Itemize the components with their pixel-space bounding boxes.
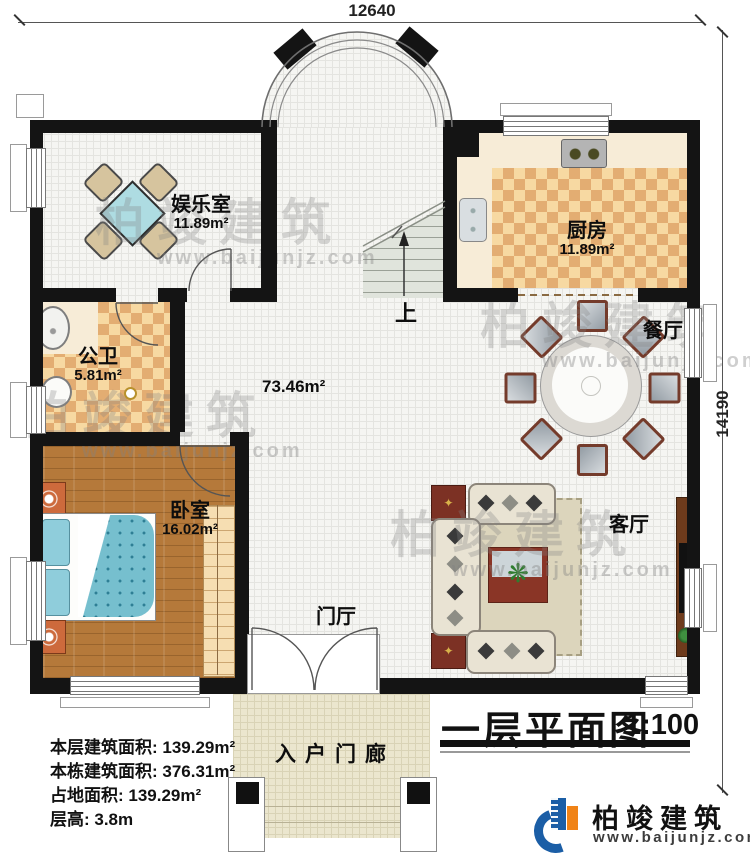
porch-column-core bbox=[236, 782, 259, 804]
window-sill bbox=[10, 382, 27, 438]
room-name: 卧室 bbox=[130, 500, 250, 522]
dimension-tick bbox=[694, 14, 706, 26]
facade-step bbox=[16, 94, 44, 118]
dining-chair bbox=[649, 373, 681, 404]
room-label-porch: 入户门廊 bbox=[240, 743, 430, 767]
wall bbox=[638, 288, 700, 302]
entrance-door-frame bbox=[247, 634, 380, 694]
window bbox=[26, 148, 46, 208]
room-label-bathroom: 公卫 5.81m² bbox=[40, 346, 156, 385]
stove bbox=[561, 139, 607, 168]
room-name: 娱乐室 bbox=[140, 194, 262, 216]
window-sill bbox=[60, 697, 210, 708]
info-footprint: 占地面积: 139.29m² bbox=[50, 781, 201, 806]
sofa-left bbox=[431, 518, 481, 636]
wall bbox=[380, 678, 645, 694]
plant-icon: ❋ bbox=[503, 558, 533, 588]
logo-building-orange-icon bbox=[567, 806, 578, 830]
window bbox=[684, 568, 702, 628]
info-floor-area: 本层建筑面积: 139.29m² bbox=[50, 733, 235, 758]
room-name: 厨房 bbox=[527, 220, 647, 242]
window bbox=[70, 676, 200, 695]
floorplan-canvas: ✦ ✦ ❋ 柏竣建筑www.baijunjz.com 柏竣建筑www.baiju… bbox=[0, 0, 750, 860]
dimension-top-value: 12640 bbox=[330, 1, 414, 21]
title-underline bbox=[440, 740, 690, 747]
side-table: ✦ bbox=[431, 485, 466, 521]
sofa-top bbox=[468, 483, 556, 525]
info-building-area: 本栋建筑面积: 376.31m² bbox=[50, 757, 235, 782]
dimension-right-value: 14190 bbox=[713, 379, 733, 449]
wall bbox=[200, 678, 247, 694]
side-table: ✦ bbox=[431, 633, 466, 669]
room-label-living: 客厅 bbox=[596, 514, 662, 536]
bed-pillow bbox=[42, 569, 70, 616]
title-underline-thin bbox=[440, 751, 690, 753]
wall bbox=[30, 288, 116, 302]
door-knob bbox=[124, 387, 137, 400]
wall bbox=[443, 288, 518, 302]
wall bbox=[30, 432, 180, 446]
window bbox=[684, 308, 702, 378]
room-label-dining: 餐厅 bbox=[630, 320, 696, 342]
dining-table-center bbox=[581, 376, 601, 396]
plan-title: 一层平面图 bbox=[441, 700, 651, 756]
room-area: 16.02m² bbox=[130, 522, 250, 539]
wall bbox=[158, 288, 187, 302]
sofa-bottom bbox=[466, 630, 556, 674]
room-name: 公卫 bbox=[40, 346, 156, 368]
wall bbox=[443, 133, 457, 302]
bed-sheet-fold bbox=[78, 515, 112, 617]
hall-area-label: 73.46m² bbox=[262, 377, 325, 397]
stairs-up-label: 上 bbox=[395, 296, 417, 328]
dimension-tick bbox=[13, 14, 25, 26]
info-floor-height: 层高: 3.8m bbox=[50, 805, 133, 830]
logo-building-blue-icon bbox=[551, 798, 566, 830]
window bbox=[26, 386, 46, 434]
wall bbox=[170, 302, 185, 432]
window-sill bbox=[703, 304, 717, 382]
bed-pillow bbox=[42, 519, 70, 566]
window-sill bbox=[500, 103, 612, 116]
room-label-bedroom: 卧室 16.02m² bbox=[130, 500, 250, 539]
window-sill bbox=[10, 557, 27, 645]
dimension-line-top bbox=[18, 22, 702, 23]
window bbox=[26, 561, 46, 641]
wall bbox=[30, 678, 70, 694]
wall bbox=[261, 120, 277, 302]
dining-chair bbox=[577, 300, 608, 332]
wall bbox=[230, 288, 277, 302]
dining-chair bbox=[577, 444, 608, 476]
room-area: 11.89m² bbox=[140, 216, 262, 233]
room-area: 11.89m² bbox=[527, 242, 647, 259]
window-sill bbox=[703, 564, 717, 632]
wall-flue bbox=[457, 133, 479, 157]
room-area: 5.81m² bbox=[40, 368, 156, 385]
window-sill bbox=[10, 144, 27, 212]
room-label-entertainment: 娱乐室 11.89m² bbox=[140, 194, 262, 233]
dining-chair bbox=[505, 373, 537, 404]
window bbox=[645, 676, 688, 695]
window bbox=[503, 116, 609, 136]
plan-scale: 1:100 bbox=[625, 709, 699, 742]
kitchen-sink bbox=[459, 198, 487, 242]
room-label-foyer: 门厅 bbox=[303, 606, 369, 628]
wall bbox=[30, 120, 272, 133]
brand-site: www.baijunjz.com bbox=[593, 829, 750, 846]
room-label-kitchen: 厨房 11.89m² bbox=[527, 220, 647, 259]
porch-column-core bbox=[407, 782, 430, 804]
